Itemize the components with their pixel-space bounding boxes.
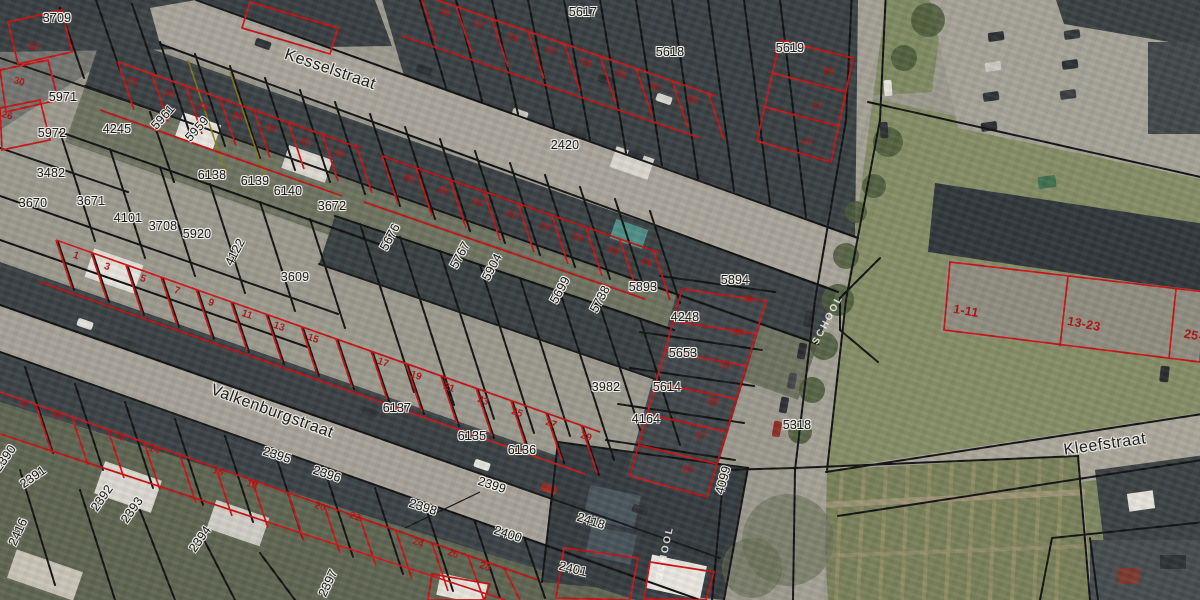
house-number-label: 40 (264, 122, 278, 136)
house-number-label: 30 (12, 75, 26, 89)
parcel-number-label: 2401 (557, 559, 588, 580)
house-number-label: 27 (544, 417, 558, 431)
parcel-number-label: 4099 (713, 464, 734, 495)
parcel-number-label: 5653 (669, 346, 698, 360)
house-number-label: 41 (801, 137, 812, 148)
house-number-label: 28 (478, 560, 492, 574)
house-number-label: 16 (211, 465, 225, 479)
house-number-label: 67 (649, 81, 663, 95)
house-number-label: 18 (245, 478, 259, 492)
house-number-label: 52 (504, 208, 518, 222)
house-number-label: 32 (26, 40, 40, 54)
parcel-number-label: 6135 (458, 429, 487, 443)
parcel-number-label: 3482 (37, 166, 66, 180)
street-name-label: Kleefstraat (1063, 430, 1148, 459)
house-number-label: 39 (822, 67, 833, 78)
house-number-label: 25 (682, 465, 693, 476)
parcel-number-label: 2420 (551, 138, 580, 152)
road-marking-text: SCHOOL (810, 293, 845, 347)
parcel-number-label: 2395 (261, 444, 293, 466)
parcel-number-label: 4164 (632, 412, 661, 426)
map-label-layer: KesselstraatValkenburgstraatKleefstraat … (0, 0, 1200, 600)
house-number-label: 22 (348, 510, 362, 524)
house-number-label: 26 (0, 109, 14, 123)
house-number-label: 46 (402, 172, 416, 186)
parcel-number-label: 5959 (182, 114, 212, 145)
house-number-label: 25 (510, 406, 524, 420)
house-number-label: 50 (470, 196, 484, 210)
house-number-label: 23 (476, 394, 490, 408)
house-number-label: 12 (113, 430, 127, 444)
house-number-label: 35 (743, 295, 754, 306)
house-number-label: 5 (139, 273, 148, 285)
parcel-number-label: 5894 (721, 273, 750, 287)
parcel-number-label: 2392 (88, 482, 116, 513)
house-number-range-label: 13-23 (1066, 314, 1102, 334)
house-number-label: 27 (695, 431, 706, 442)
house-number-label: 29 (707, 397, 718, 408)
parcel-number-label: 4245 (103, 122, 132, 136)
house-number-label: 9 (207, 297, 216, 309)
parcel-number-label: 3982 (592, 380, 621, 394)
parcel-number-label: 5893 (629, 280, 658, 294)
house-number-label: 32 (126, 75, 140, 89)
house-number-label: 8 (19, 398, 28, 410)
house-number-label: 11 (240, 308, 254, 322)
house-number-label: 38 (230, 110, 244, 124)
parcel-number-label: 5971 (49, 90, 78, 104)
street-name-label: Valkenburgstraat (208, 381, 336, 442)
house-number-label: 36 (196, 100, 210, 114)
parcel-number-label: 2390 (0, 442, 19, 473)
parcel-number-label: 5614 (653, 380, 682, 394)
house-number-label: 54 (538, 220, 552, 234)
parcel-number-label: 5699 (547, 274, 573, 306)
house-number-label: 33 (732, 328, 743, 339)
parcel-number-label: 3670 (19, 196, 48, 210)
parcel-number-label: 5617 (569, 5, 598, 19)
house-number-range-label: 25-3 (1183, 327, 1200, 346)
parcel-number-label: 5961 (148, 102, 178, 133)
house-number-label: 63 (579, 56, 593, 70)
house-number-label: 55 (438, 6, 452, 20)
parcel-number-label: 6139 (241, 174, 270, 188)
house-number-label: 31 (719, 361, 730, 372)
parcel-number-label: 2418 (575, 510, 607, 532)
parcel-number-label: 2393 (118, 494, 146, 525)
parcel-number-label: 5619 (776, 41, 805, 55)
house-number-label: 65 (614, 68, 628, 82)
house-number-label: 57 (472, 18, 486, 32)
parcel-number-label: 3709 (43, 11, 72, 25)
aerial-cadastral-map[interactable]: KesselstraatValkenburgstraatKleefstraat … (0, 0, 1200, 600)
house-number-label: 20 (313, 500, 327, 514)
parcel-number-label: 2397 (316, 567, 341, 599)
house-number-label: 48 (436, 184, 450, 198)
house-number-label: 17 (376, 356, 390, 370)
house-number-label: 19 (409, 369, 423, 383)
house-number-label: 69 (685, 93, 699, 107)
parcel-number-label: 5904 (479, 251, 505, 283)
parcel-number-label: 6137 (383, 401, 412, 415)
street-name-label: Kesselstraat (282, 46, 378, 94)
parcel-number-label: 4101 (114, 211, 143, 225)
road-marking-text: SCHOOL (654, 525, 676, 581)
parcel-number-label: 6140 (274, 184, 303, 198)
parcel-number-label: 2398 (407, 496, 439, 518)
parcel-number-label: 5738 (587, 283, 613, 315)
parcel-number-label: 2416 (6, 516, 31, 548)
parcel-number-label: 5676 (377, 221, 403, 253)
parcel-number-label: 5972 (38, 126, 67, 140)
parcel-number-label: 2396 (311, 463, 343, 485)
house-number-label: 15 (306, 332, 320, 346)
parcel-number-label: 5318 (783, 418, 812, 432)
house-number-label: 34 (162, 87, 176, 101)
parcel-number-label: 4122 (222, 236, 248, 268)
house-number-label: 1 (72, 250, 81, 262)
parcel-number-label: 2400 (492, 523, 524, 545)
house-number-label: 13 (272, 320, 286, 334)
house-number-label: 7 (173, 285, 182, 297)
house-number-label: 44 (332, 147, 346, 161)
house-number-label: 56 (571, 231, 585, 245)
house-number-label: 3 (103, 261, 112, 273)
parcel-number-label: 2391 (17, 463, 48, 491)
parcel-number-label: 3671 (77, 194, 106, 208)
parcel-number-label: 5767 (447, 239, 473, 271)
house-number-label: 26 (446, 547, 460, 561)
house-number-label: 14 (147, 443, 161, 457)
house-number-label: 58 (606, 244, 620, 258)
parcel-number-label: 6138 (198, 168, 227, 182)
parcel-number-label: 2394 (186, 523, 214, 554)
house-number-label: 10 (50, 408, 64, 422)
house-number-label: 37 (811, 102, 822, 113)
house-number-label: 29 (579, 430, 593, 444)
house-number-label: 59 (506, 31, 520, 45)
house-number-label: 24 (411, 536, 425, 550)
parcel-number-label: 5618 (656, 45, 685, 59)
house-number-range-label: 1-11 (952, 302, 980, 320)
parcel-number-label: 3672 (318, 199, 347, 213)
house-number-label: 21 (442, 381, 456, 395)
house-number-label: 42 (298, 135, 312, 149)
parcel-number-label: 3609 (281, 270, 310, 284)
house-number-label: 60 (640, 256, 654, 270)
parcel-number-label: 6136 (508, 443, 537, 457)
parcel-number-label: 5920 (183, 227, 212, 241)
parcel-number-label: 4248 (671, 310, 700, 324)
parcel-number-label: 3708 (149, 219, 178, 233)
parcel-number-label: 2399 (476, 474, 508, 496)
house-number-label: 61 (544, 44, 558, 58)
